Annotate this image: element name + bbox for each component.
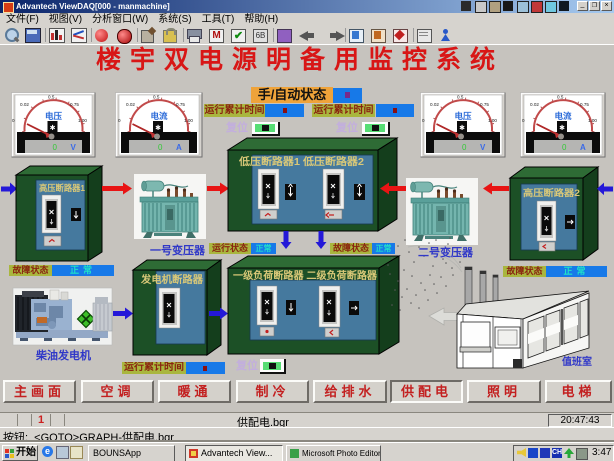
- svg-text:电压: 电压: [45, 111, 63, 121]
- svg-text:A: A: [580, 143, 586, 152]
- svg-text:0: 0: [53, 143, 58, 152]
- svg-text:高压断路器1: 高压断路器1: [39, 183, 85, 193]
- svg-text:0: 0: [158, 143, 163, 152]
- svg-text:电压: 电压: [454, 111, 472, 121]
- svg-text:1.00: 1.00: [184, 118, 193, 123]
- svg-text:0.02: 0.02: [430, 102, 439, 107]
- svg-text:0: 0: [422, 118, 425, 123]
- svg-text:1.00: 1.00: [488, 118, 497, 123]
- svg-text:0: 0: [462, 143, 467, 152]
- svg-text:0: 0: [562, 143, 567, 152]
- svg-text:V: V: [480, 143, 486, 152]
- svg-text:✱: ✱: [459, 124, 465, 132]
- svg-text:✱: ✱: [559, 124, 565, 132]
- svg-text:0: 0: [118, 118, 121, 123]
- svg-text:0.02: 0.02: [530, 102, 539, 107]
- svg-text:0.75: 0.75: [176, 102, 185, 107]
- svg-text:0: 0: [522, 118, 525, 123]
- svg-text:V: V: [71, 143, 77, 152]
- svg-text:0.02: 0.02: [20, 102, 29, 107]
- svg-text:0.5: 0.5: [557, 95, 564, 100]
- svg-text:电流: 电流: [150, 111, 168, 121]
- svg-text:电流: 电流: [554, 111, 572, 121]
- svg-text:低压断路器1 低压断路器2: 低压断路器1 低压断路器2: [238, 155, 365, 168]
- svg-text:0.75: 0.75: [70, 102, 79, 107]
- svg-text:0.75: 0.75: [480, 102, 489, 107]
- svg-text:✱: ✱: [155, 124, 161, 132]
- svg-text:0: 0: [12, 118, 15, 123]
- svg-text:✱: ✱: [50, 124, 56, 132]
- svg-text:0.5: 0.5: [153, 95, 160, 100]
- svg-text:0.02: 0.02: [126, 102, 135, 107]
- svg-text:发电机断路器: 发电机断路器: [140, 273, 204, 286]
- svg-text:1.00: 1.00: [78, 118, 87, 123]
- svg-text:0.5: 0.5: [48, 95, 55, 100]
- svg-text:0.5: 0.5: [457, 95, 464, 100]
- svg-text:1.00: 1.00: [588, 118, 597, 123]
- svg-text:一级负荷断路器 二级负荷断路器: 一级负荷断路器 二级负荷断路器: [233, 269, 378, 282]
- svg-text:0.75: 0.75: [580, 102, 589, 107]
- svg-text:高压断路器2: 高压断路器2: [523, 187, 580, 198]
- svg-text:A: A: [176, 143, 182, 152]
